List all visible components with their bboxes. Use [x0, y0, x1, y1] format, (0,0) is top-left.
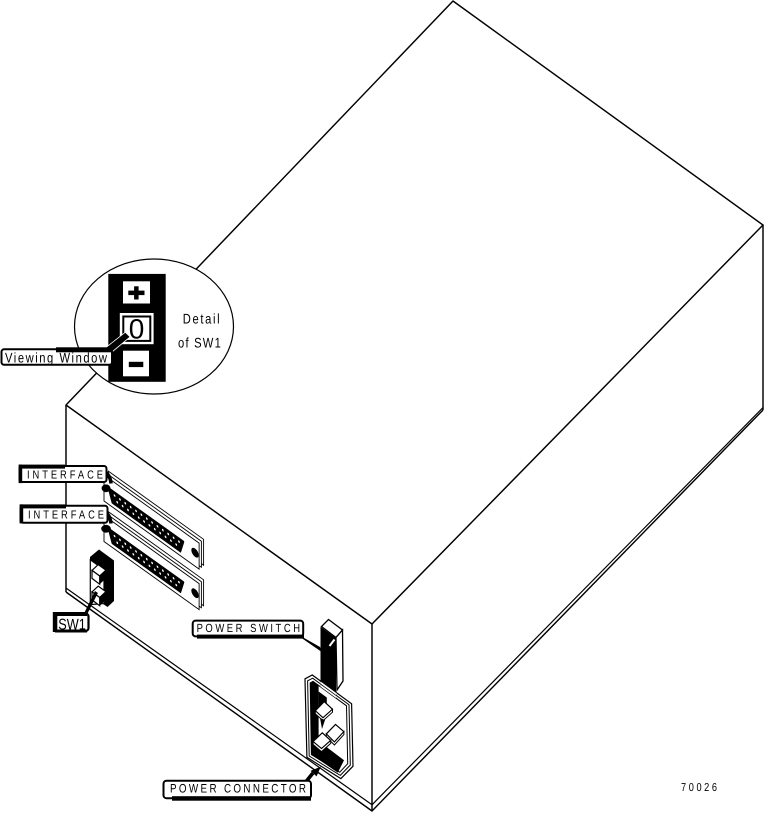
svg-text:Detail: Detail [183, 310, 220, 326]
svg-text:INTERFACE: INTERFACE [27, 468, 103, 481]
svg-text:INTERFACE: INTERFACE [28, 509, 104, 522]
svg-text:Viewing Window: Viewing Window [5, 349, 108, 365]
svg-text:SW1: SW1 [58, 616, 85, 633]
svg-text:0: 0 [129, 313, 145, 344]
svg-text:POWER CONNECTOR: POWER CONNECTOR [170, 781, 306, 795]
